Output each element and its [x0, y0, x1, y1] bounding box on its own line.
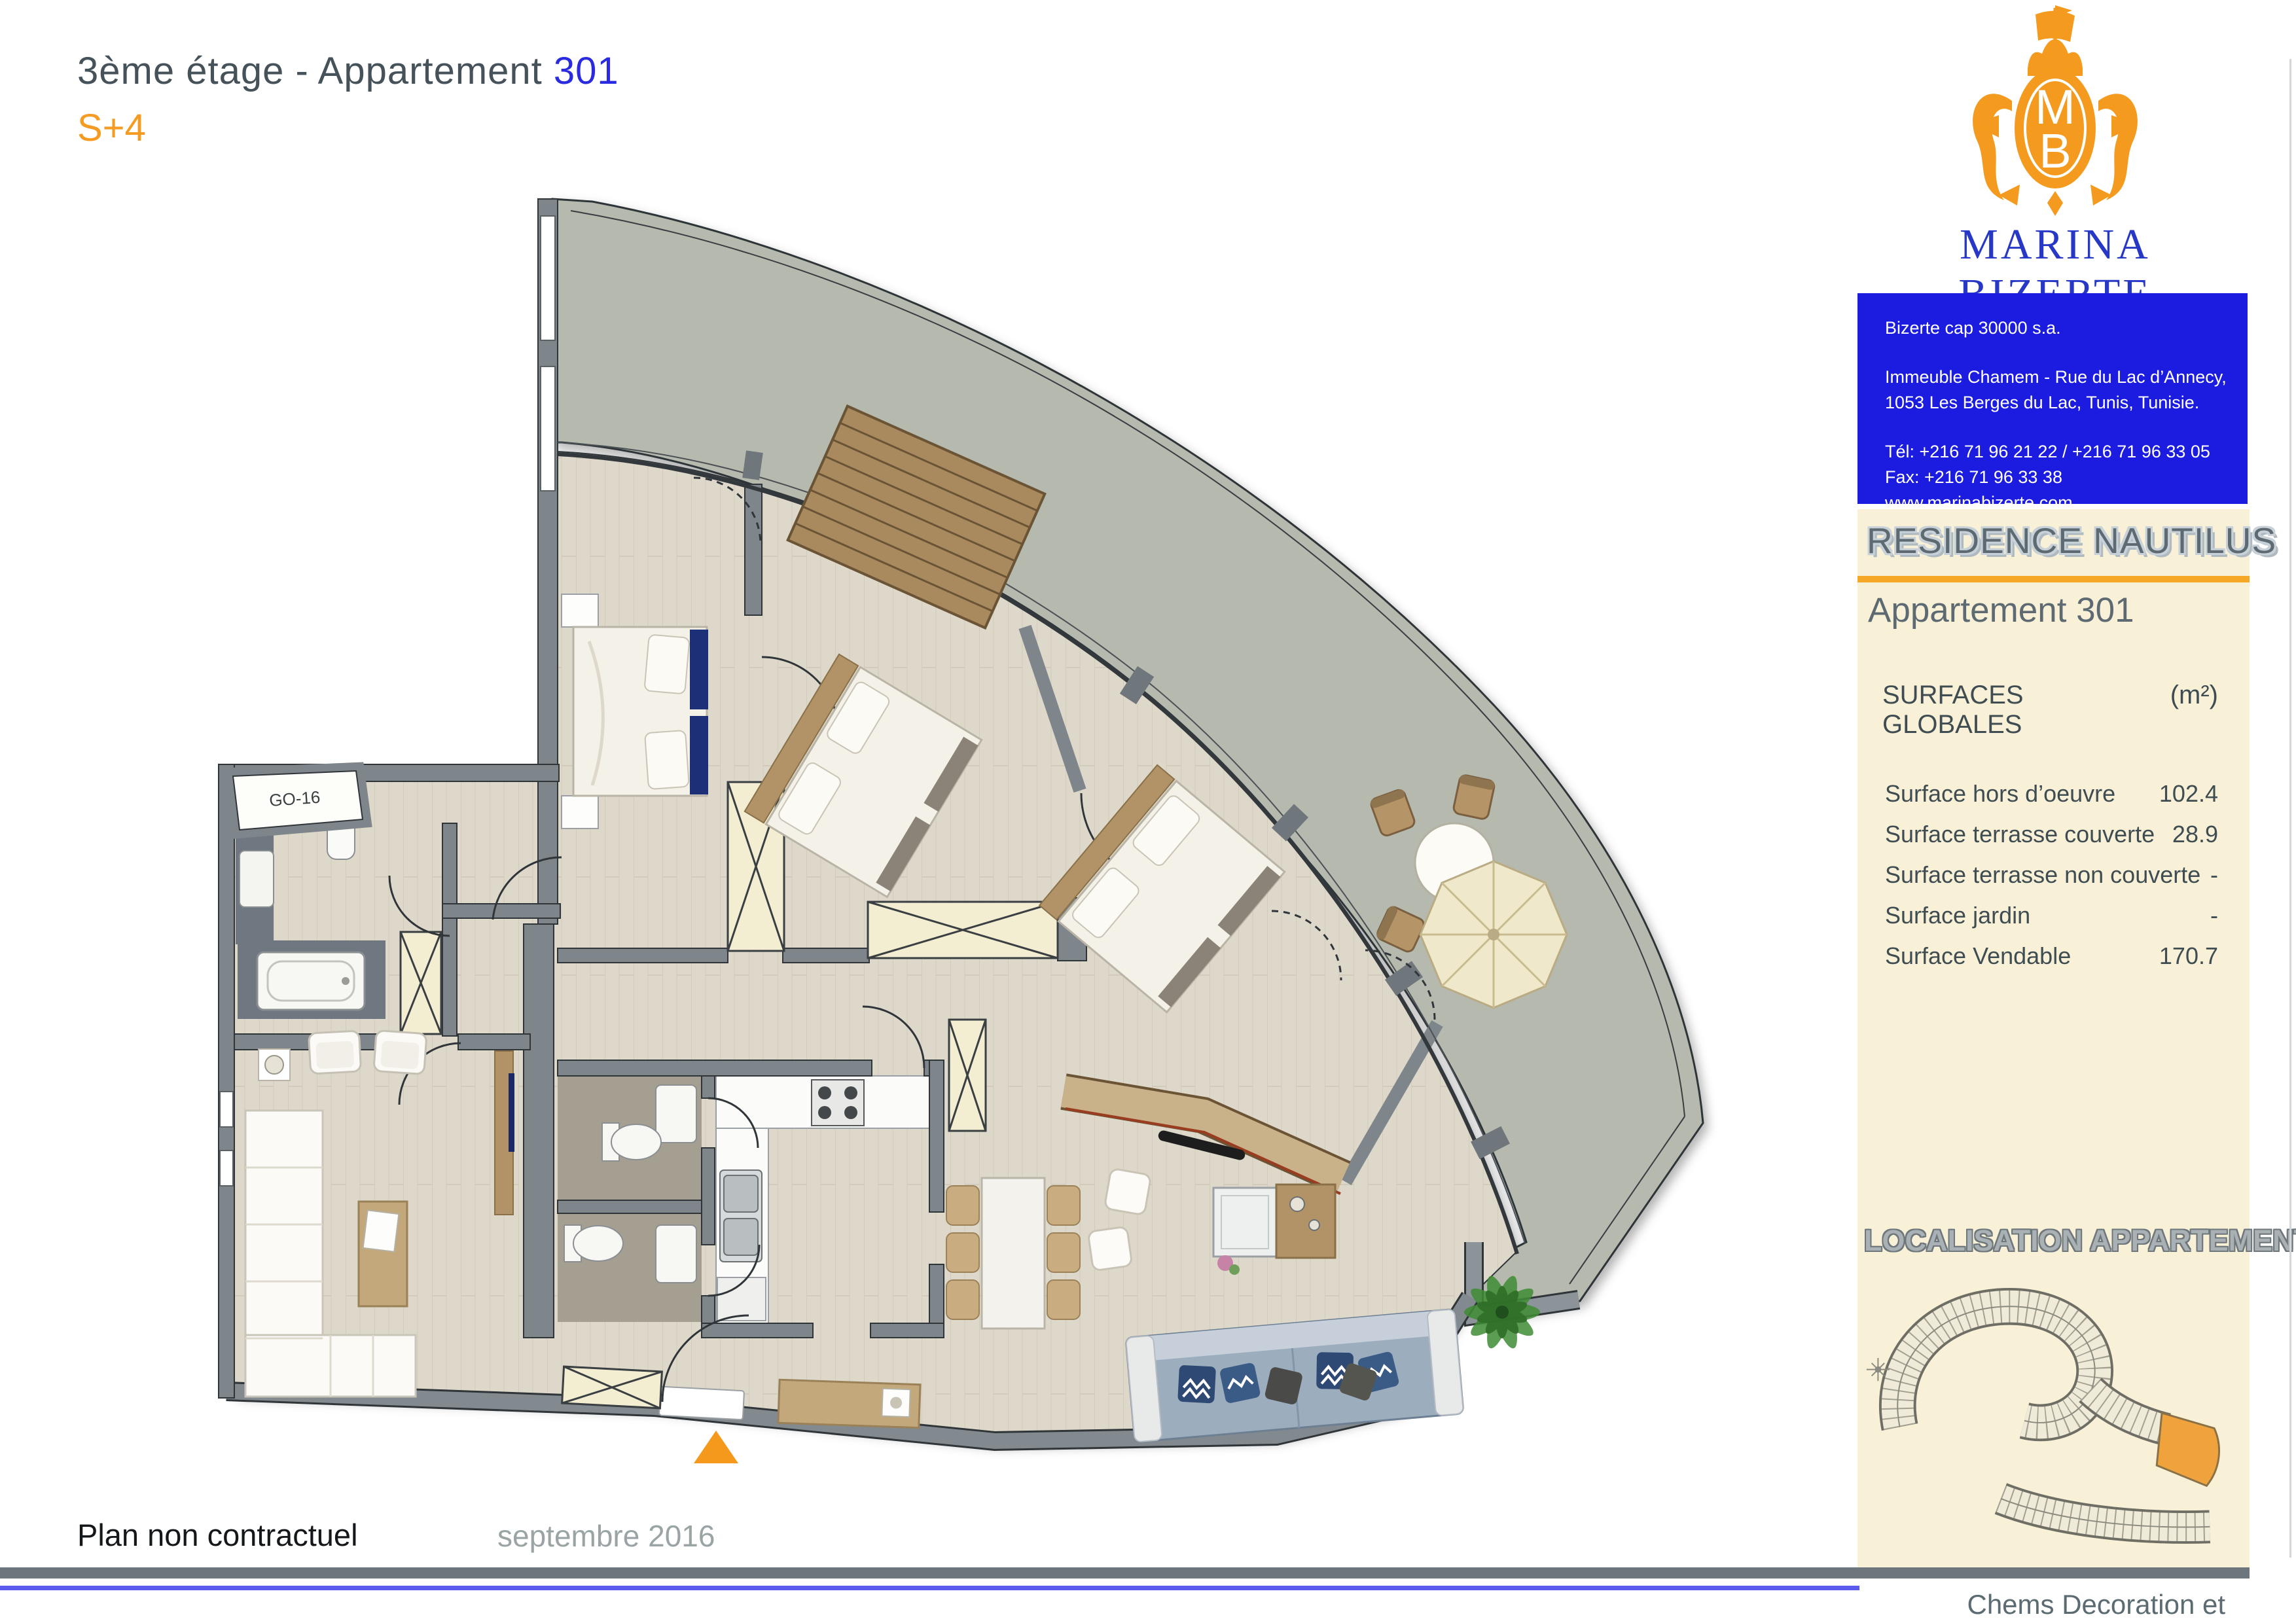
- mirror-table: [1213, 1188, 1276, 1257]
- headboard-blue: [690, 630, 708, 709]
- page-edge-line: [2289, 59, 2291, 1558]
- table-row: Surface hors d’oeuvre 102.4: [1885, 774, 2218, 814]
- surfaces-table: Surface hors d’oeuvre 102.4 Surface terr…: [1885, 774, 2218, 976]
- surfaces-header: (m²) SURFACES GLOBALES: [1882, 681, 2218, 740]
- headboard-blue: [690, 716, 708, 794]
- sink-basin: [724, 1219, 758, 1255]
- speaker-cone-icon: [265, 1056, 283, 1074]
- contact-address-1: Immeuble Chamem - Rue du Lac d’Annecy,: [1885, 365, 2248, 390]
- marina-bizerte-crest-icon: M B: [1944, 3, 2166, 219]
- nightstand: [562, 796, 598, 829]
- bench: [778, 1380, 920, 1427]
- wood-table: [1276, 1185, 1335, 1258]
- wall-kitchen-bottom: [870, 1323, 944, 1338]
- residence-name: RESIDENCE NAUTILUS: [1867, 520, 2243, 562]
- pillow: [644, 634, 689, 694]
- wall-tv: [509, 1073, 514, 1152]
- book: [363, 1210, 399, 1251]
- apartment-label: Appartement 301: [1868, 590, 2134, 630]
- surface-value: -: [2210, 855, 2218, 895]
- dining-set: [946, 1178, 1080, 1329]
- surface-label: Surface Vendable: [1885, 936, 2071, 976]
- surface-value: 102.4: [2159, 774, 2218, 814]
- closet: [949, 1020, 986, 1131]
- surface-label: Surface terrasse non couverte: [1885, 855, 2200, 895]
- wall-wc-mid: [558, 1200, 702, 1213]
- localisation-title: LOCALISATION APPARTEMENT: [1864, 1224, 2244, 1258]
- burner-icon: [844, 1086, 857, 1099]
- localisation-map: [1861, 1267, 2245, 1561]
- panel-divider: [1857, 576, 2250, 582]
- info-panel: RESIDENCE NAUTILUS Appartement 301 (m²) …: [1857, 509, 2250, 1567]
- surfaces-title: SURFACES GLOBALES: [1882, 681, 2024, 739]
- wall-wc-right: [702, 1296, 715, 1323]
- burner-icon: [818, 1106, 831, 1119]
- decor-icon: [1290, 1197, 1304, 1211]
- entrance-marker-icon: [694, 1431, 738, 1463]
- monogram-b: B: [2039, 124, 2071, 178]
- wall-corridor-top-b: [783, 948, 869, 963]
- armchair: [308, 1031, 361, 1074]
- footer-credit: Chems Decoration et Agencement: [1844, 1589, 2225, 1623]
- surface-label: Surface hors d’oeuvre: [1885, 774, 2115, 814]
- bathtub-drain: [342, 977, 350, 985]
- table-row: Surface jardin -: [1885, 895, 2218, 936]
- window: [220, 1092, 233, 1127]
- wall-wc-right: [702, 1148, 715, 1245]
- highlighted-apartment: [2157, 1413, 2219, 1486]
- bed-master: [562, 594, 708, 829]
- closet: [401, 932, 441, 1034]
- sink-basin: [724, 1175, 758, 1212]
- table-row: Surface terrasse non couverte -: [1885, 855, 2218, 895]
- footer-date: septembre 2016: [497, 1518, 715, 1554]
- entrance-opening: [659, 1387, 744, 1420]
- contact-address-2: 1053 Les Berges du Lac, Tunis, Tunisie.: [1885, 390, 2248, 416]
- footer-blue-line: [0, 1586, 1859, 1590]
- window: [541, 366, 555, 491]
- closet: [868, 902, 1058, 958]
- footer-gray-bar: [0, 1567, 2250, 1578]
- decor-icon: [1309, 1220, 1319, 1230]
- pouf: [1104, 1168, 1151, 1215]
- burner-icon: [818, 1086, 831, 1099]
- surface-label: Surface terrasse couverte: [1885, 814, 2155, 855]
- wc-toilet-bowl: [611, 1124, 661, 1160]
- contact-phone: Tél: +216 71 96 21 22 / +216 71 96 33 05: [1885, 439, 2248, 465]
- wc-sink: [656, 1225, 696, 1283]
- building-hook: [1897, 1306, 2094, 1427]
- plan-sheet: 3ème étage - Appartement 301 S+4: [0, 0, 2296, 1623]
- surface-value: -: [2210, 895, 2218, 936]
- armchair: [374, 1030, 427, 1074]
- surface-value: 170.7: [2159, 936, 2218, 976]
- wall-corridor-top-a: [558, 948, 728, 963]
- wall-kitchen-bottom: [702, 1323, 813, 1338]
- table-row: Surface Vendable 170.7: [1885, 936, 2218, 976]
- bath-sink: [240, 851, 274, 907]
- flowers-icon: [1229, 1264, 1240, 1275]
- window: [220, 1150, 233, 1186]
- pouf: [1088, 1226, 1132, 1271]
- wall-living-top-b: [458, 1034, 530, 1050]
- wall-left-outer: [219, 764, 234, 1398]
- surface-label: Surface jardin: [1885, 895, 2030, 936]
- floor-plan: GO-16: [0, 0, 1859, 1623]
- surfaces-unit: (m²): [2170, 681, 2218, 710]
- wall-bath-right: [442, 823, 457, 1036]
- wall-hall-top: [442, 904, 560, 918]
- nightstand: [562, 594, 598, 627]
- wall-kitchen-top: [558, 1060, 872, 1076]
- wc-sink: [656, 1085, 696, 1143]
- dining-table: [982, 1178, 1045, 1329]
- wall-kitchen-right-b: [929, 1264, 944, 1323]
- table-row: Surface terrasse couverte 28.9: [1885, 814, 2218, 855]
- window-sill: [562, 1366, 662, 1408]
- parasol: [1420, 861, 1567, 1008]
- surface-value: 28.9: [2172, 814, 2218, 855]
- contact-company: Bizerte cap 30000 s.a.: [1885, 315, 2248, 341]
- terrace-chair: [1452, 774, 1495, 820]
- building-tail: [2090, 1390, 2167, 1430]
- wc-toilet-bowl: [573, 1226, 623, 1261]
- contact-box: Bizerte cap 30000 s.a. Immeuble Chamem -…: [1857, 293, 2248, 504]
- go16-label: GO-16: [268, 787, 321, 810]
- stove: [812, 1080, 864, 1126]
- burner-icon: [844, 1106, 857, 1119]
- window: [541, 216, 555, 340]
- wall-kitchen-right-a: [929, 1060, 944, 1212]
- contact-fax: Fax: +216 71 96 33 38: [1885, 465, 2248, 490]
- building-bar: [2001, 1499, 2210, 1527]
- footer-note: Plan non contractuel: [77, 1517, 358, 1553]
- wall-wc-right: [702, 1076, 715, 1098]
- wall-hall-left: [524, 924, 554, 1338]
- pillow: [645, 730, 689, 789]
